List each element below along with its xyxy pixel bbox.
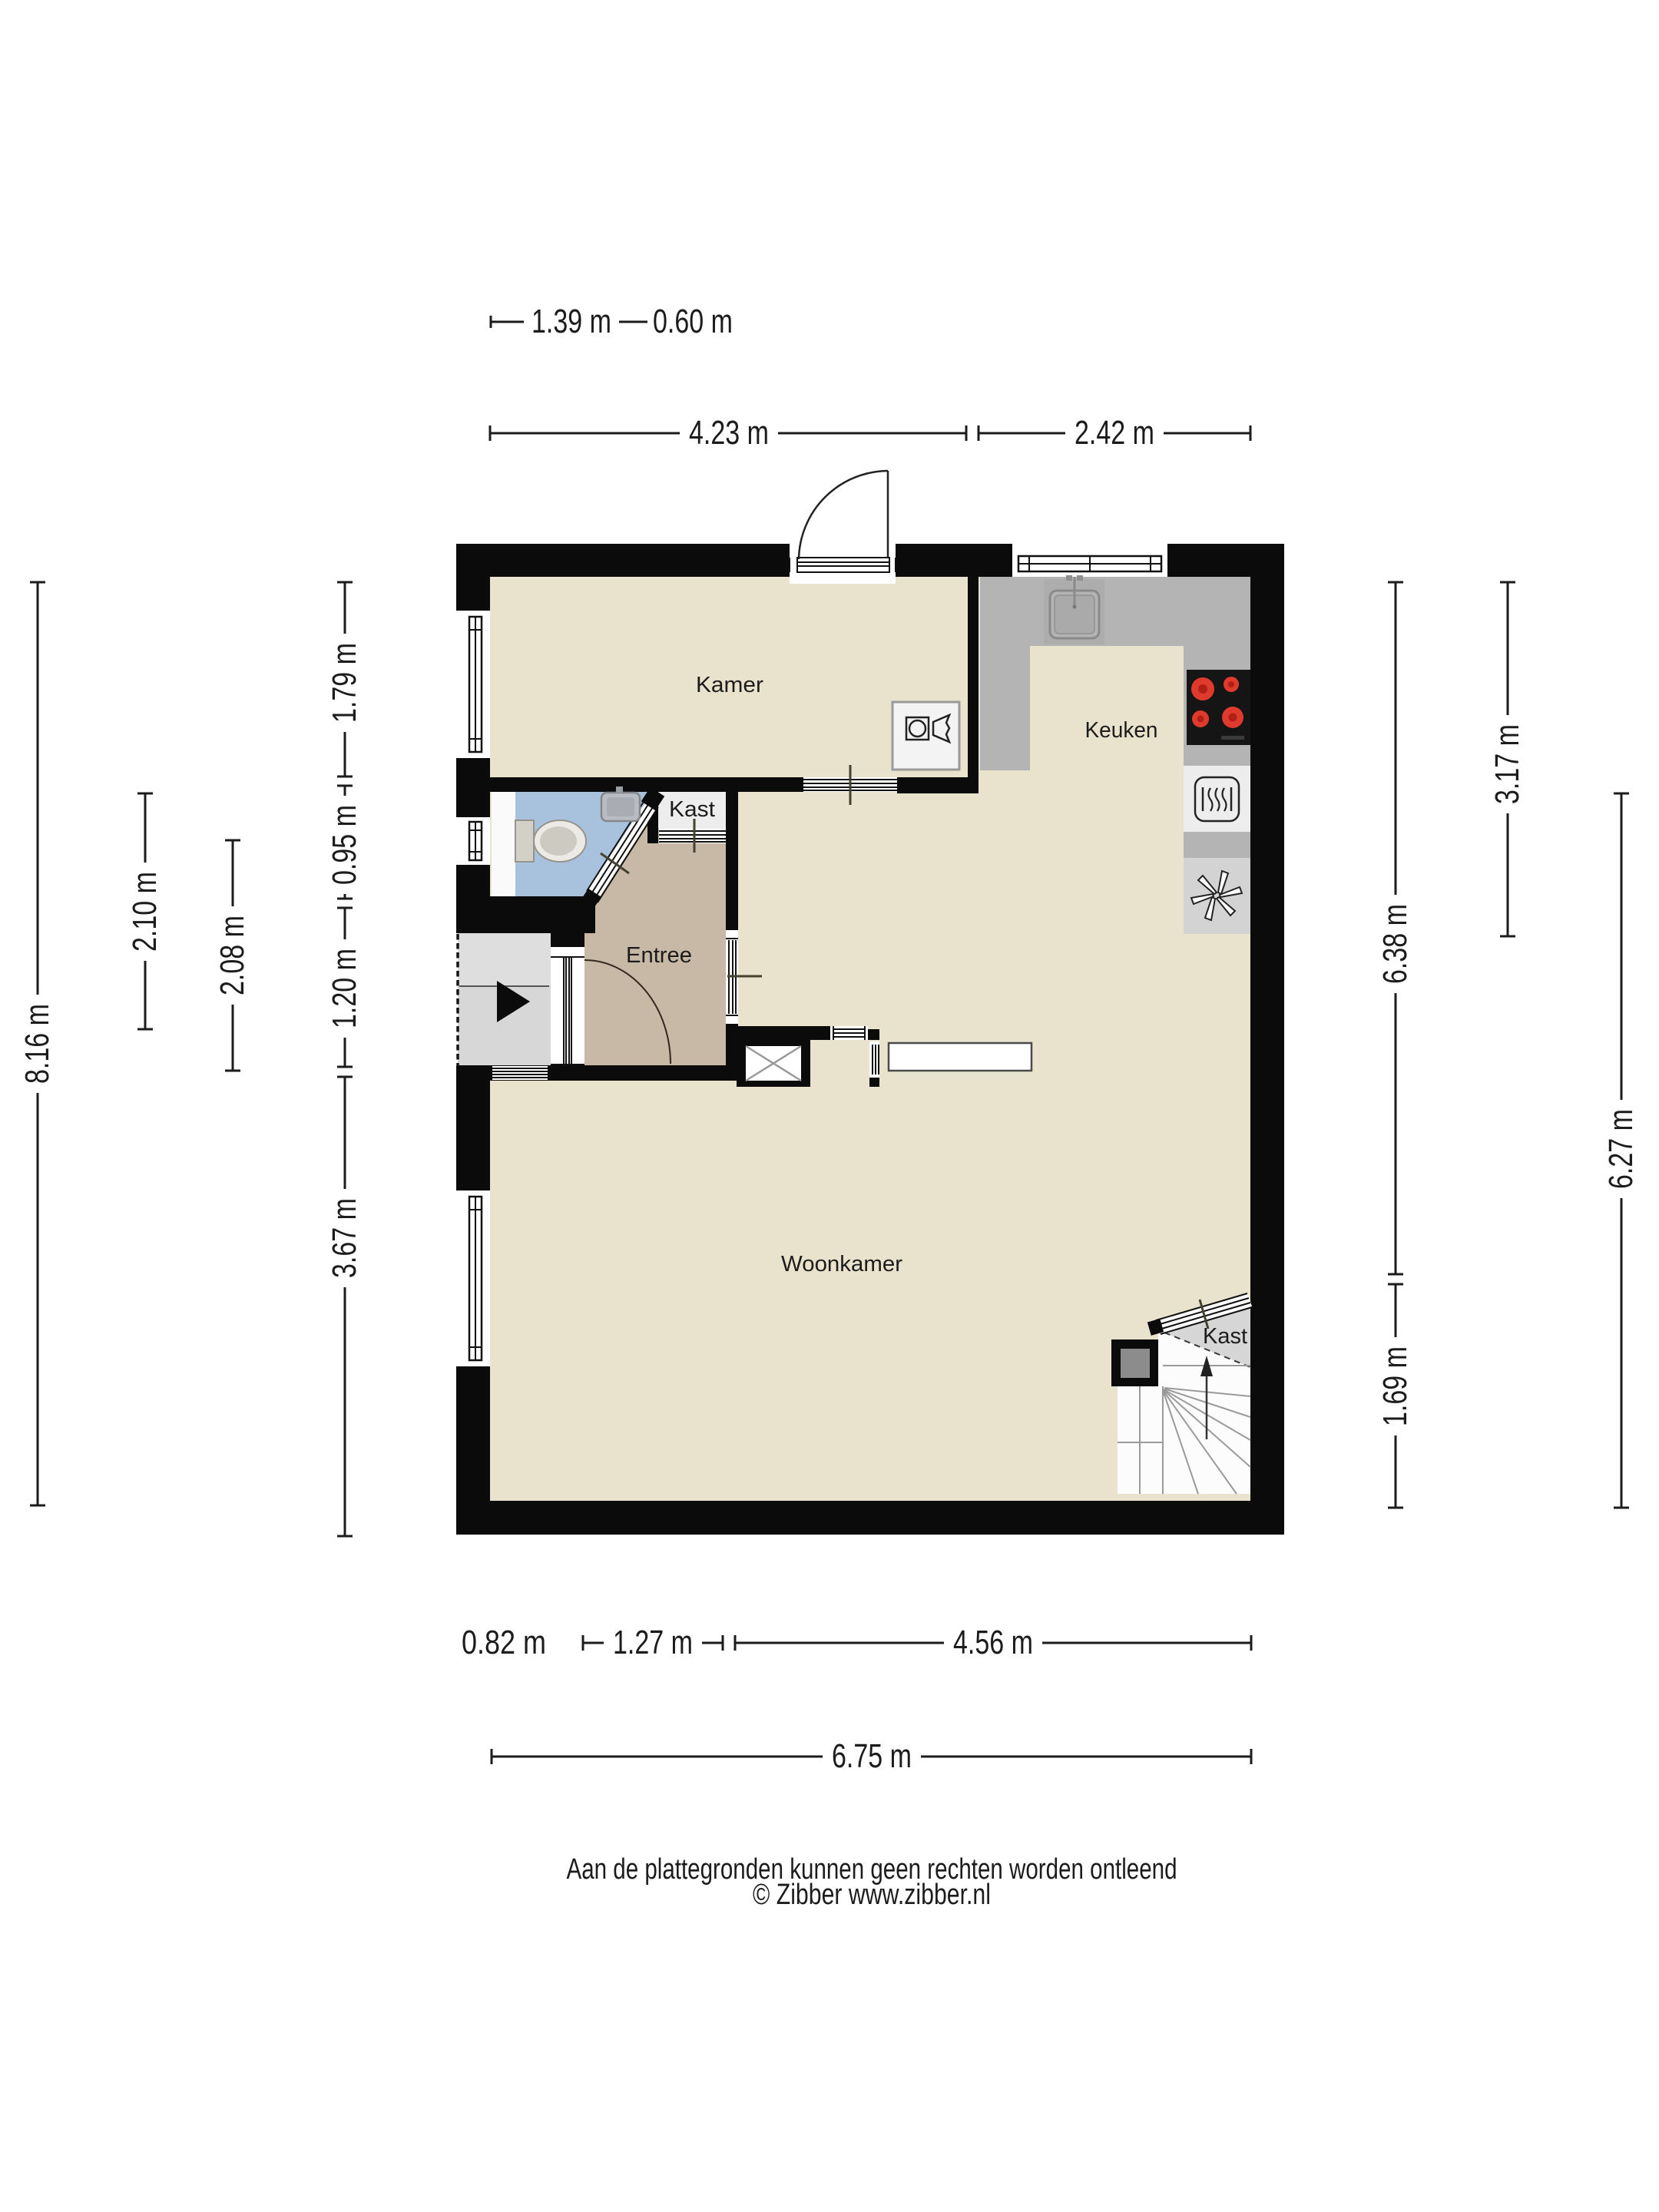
svg-text:1.39 m: 1.39 m (531, 303, 611, 340)
svg-text:1.20 m: 1.20 m (326, 949, 363, 1028)
svg-text:2.42 m: 2.42 m (1075, 414, 1154, 452)
svg-text:0.82 m: 0.82 m (462, 1624, 546, 1661)
svg-text:6.75 m: 6.75 m (832, 1737, 912, 1775)
svg-text:1.69 m: 1.69 m (1376, 1346, 1414, 1426)
svg-text:2.08 m: 2.08 m (214, 916, 251, 995)
svg-text:Kast: Kast (1203, 1324, 1247, 1349)
svg-text:1.79 m: 1.79 m (326, 643, 363, 723)
svg-text:0.60 m: 0.60 m (653, 303, 733, 340)
svg-text:8.16 m: 8.16 m (18, 1004, 56, 1084)
svg-text:Keuken: Keuken (1085, 718, 1158, 743)
svg-text:4.56 m: 4.56 m (953, 1624, 1033, 1661)
svg-text:3.17 m: 3.17 m (1488, 724, 1526, 804)
svg-text:3.67 m: 3.67 m (326, 1198, 363, 1278)
svg-text:4.23 m: 4.23 m (689, 414, 769, 452)
svg-text:0.95 m: 0.95 m (326, 805, 363, 885)
svg-text:Entree: Entree (626, 943, 692, 968)
svg-text:2.10 m: 2.10 m (126, 872, 164, 952)
svg-text:© Zibber www.zibber.nl: © Zibber www.zibber.nl (753, 1879, 991, 1911)
svg-text:1.27 m: 1.27 m (613, 1624, 693, 1661)
svg-text:Kast: Kast (669, 797, 715, 822)
svg-text:6.38 m: 6.38 m (1376, 904, 1414, 984)
svg-text:Kamer: Kamer (696, 673, 763, 697)
svg-text:6.27 m: 6.27 m (1602, 1109, 1640, 1189)
svg-text:Woonkamer: Woonkamer (781, 1252, 902, 1277)
